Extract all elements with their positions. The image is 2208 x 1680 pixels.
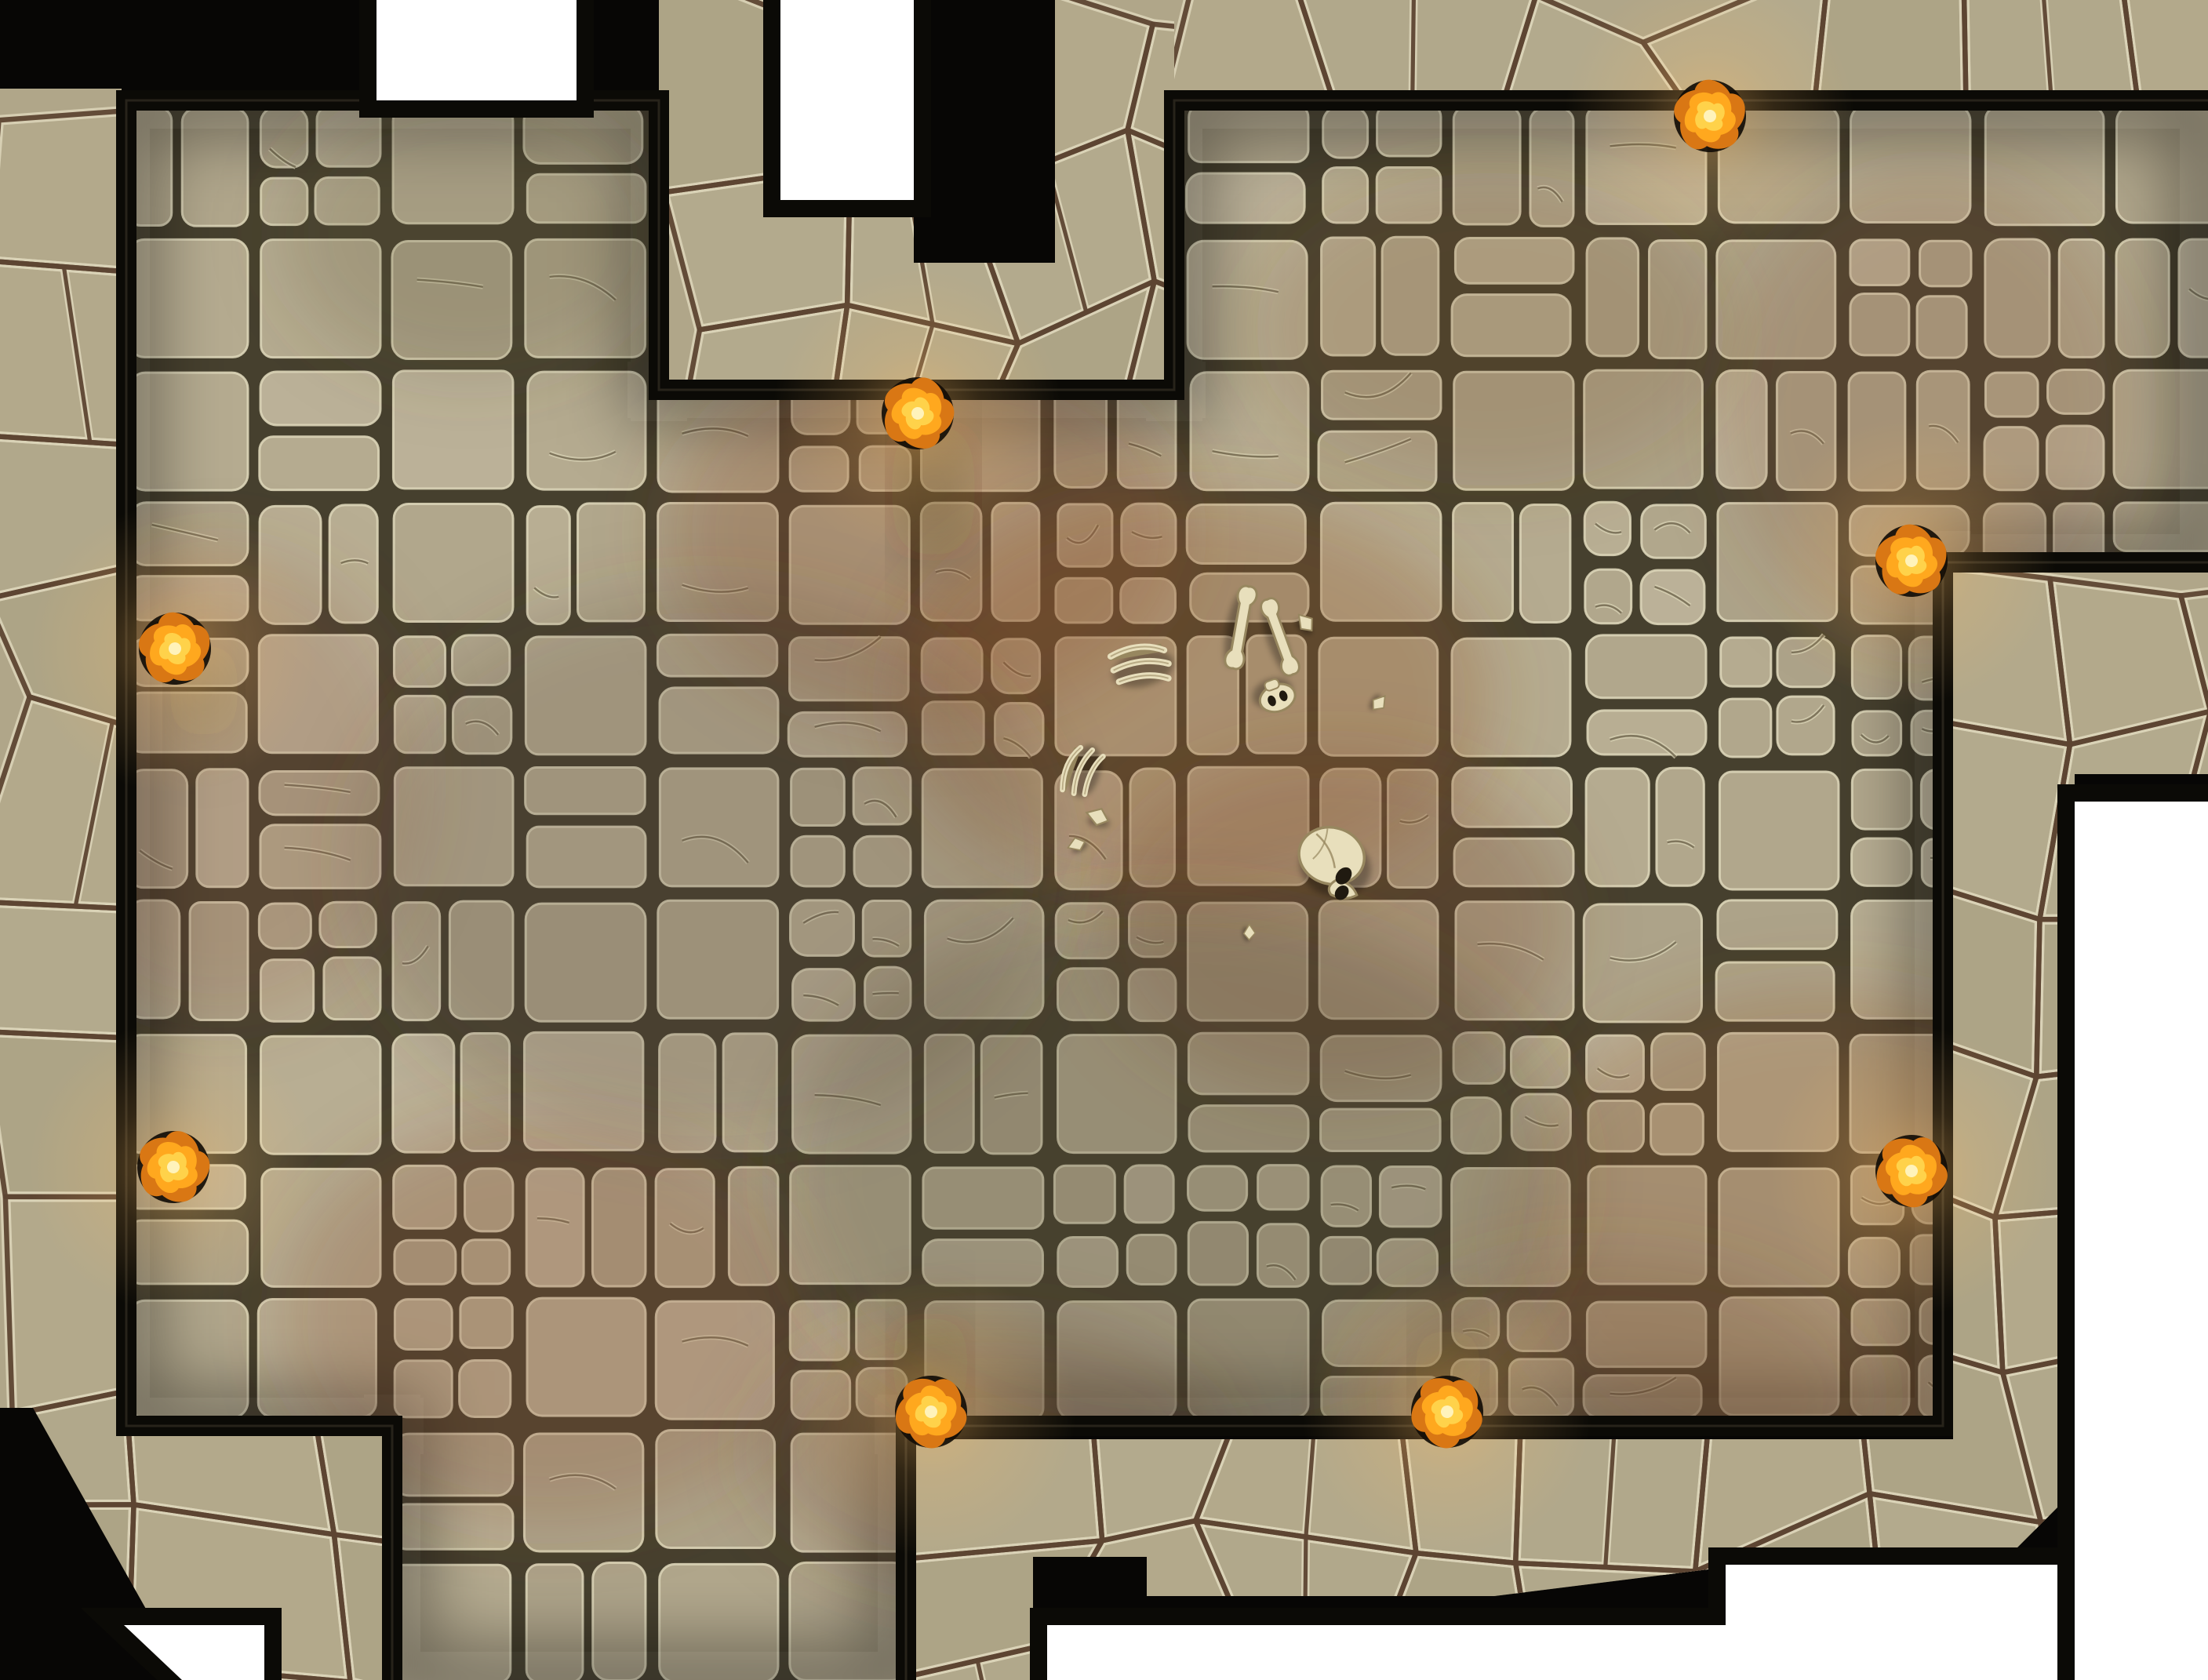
torch-flame-icon [786, 1267, 1076, 1557]
floor-stain [282, 94, 659, 376]
black-edge-block-top-notch [914, 0, 1055, 263]
dungeon-map-svg [0, 0, 2208, 1680]
torch-flame-icon [28, 1022, 318, 1312]
torch-flame-icon [773, 268, 1063, 558]
battle-map-stage [0, 0, 2208, 1680]
torch-flame-icon [1302, 1267, 1592, 1557]
torch-flame-icon [1766, 1026, 2057, 1316]
white-edge-gap-top-left [376, 0, 577, 100]
white-edge-gap-right-band [2075, 802, 2208, 1680]
white-edge-gap-top-notch [780, 0, 914, 200]
torch-flame-icon [30, 504, 320, 794]
torch-flame-icon [1766, 416, 2057, 706]
floor-stain [353, 588, 1059, 1137]
